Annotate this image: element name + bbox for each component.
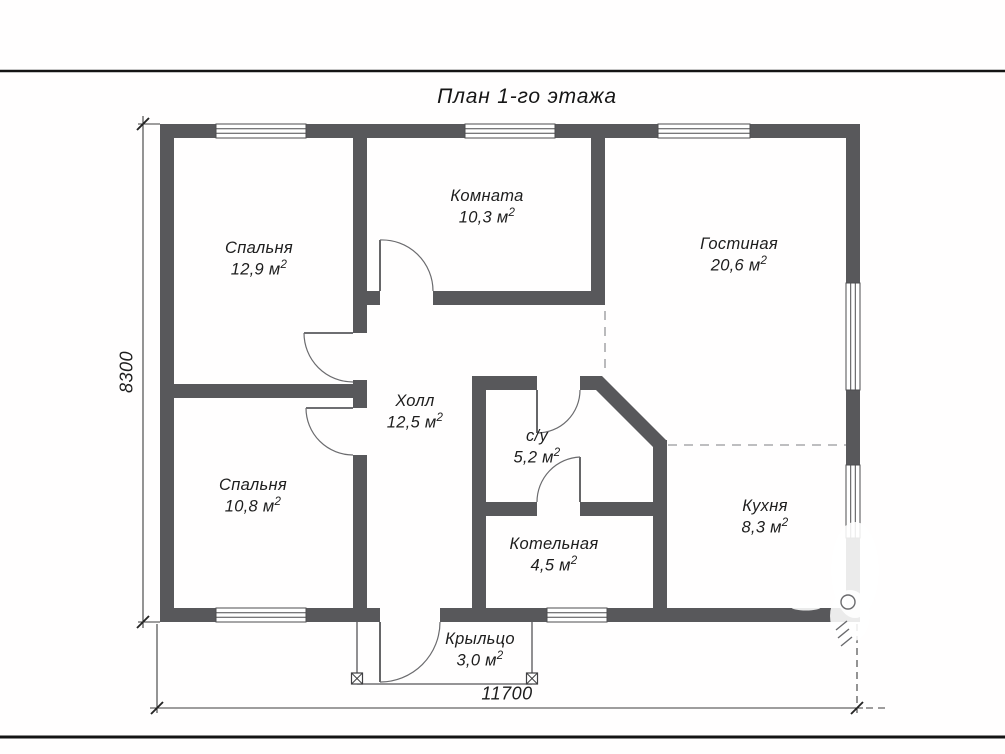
door-entrance bbox=[380, 622, 440, 682]
dimension-height bbox=[137, 116, 160, 628]
porch-post bbox=[527, 673, 538, 684]
window-boiler bbox=[547, 608, 607, 622]
diagonal-wall bbox=[592, 376, 667, 451]
room-area: 8,3 м2 bbox=[741, 516, 788, 538]
room-label-bathroom: с/у 5,2 м2 bbox=[513, 426, 560, 468]
room-label-bedroom-2: Спальня 10,8 м2 bbox=[219, 475, 287, 517]
door-room bbox=[380, 240, 433, 291]
floor-plan-sheet: План 1-го этажа Спальня 12,9 м2 Комната … bbox=[0, 0, 1005, 754]
room-area: 3,0 м2 bbox=[445, 649, 515, 671]
window-bedroom-1 bbox=[216, 124, 306, 138]
room-label-boiler: Котельная 4,5 м2 bbox=[509, 534, 598, 576]
room-area: 12,5 м2 bbox=[387, 411, 444, 433]
room-area: 20,6 м2 bbox=[700, 254, 778, 276]
room-label-room: Комната 10,3 м2 bbox=[450, 186, 523, 228]
dimension-label-height: 8300 bbox=[117, 351, 138, 393]
drawing-title: План 1-го этажа bbox=[437, 85, 617, 109]
room-name: Холл bbox=[387, 391, 444, 411]
window-living-right bbox=[846, 283, 860, 390]
room-name: Гостиная bbox=[700, 234, 778, 254]
window-living-top bbox=[658, 124, 750, 138]
room-name: Котельная bbox=[509, 534, 598, 554]
door-bedroom-1 bbox=[304, 333, 353, 382]
watermark-artifact bbox=[791, 522, 879, 646]
room-name: Кухня bbox=[741, 496, 788, 516]
room-label-porch: Крыльцо 3,0 м2 bbox=[445, 629, 515, 671]
window-room bbox=[465, 124, 555, 138]
room-area: 5,2 м2 bbox=[513, 446, 560, 468]
room-name: с/у bbox=[513, 426, 560, 446]
room-label-bedroom-1: Спальня 12,9 м2 bbox=[225, 238, 293, 280]
room-label-hall: Холл 12,5 м2 bbox=[387, 391, 444, 433]
room-name: Спальня bbox=[219, 475, 287, 495]
room-area: 4,5 м2 bbox=[509, 554, 598, 576]
room-area: 10,3 м2 bbox=[450, 206, 523, 228]
room-area: 12,9 м2 bbox=[225, 258, 293, 280]
room-label-living: Гостиная 20,6 м2 bbox=[700, 234, 778, 276]
room-name: Спальня bbox=[225, 238, 293, 258]
dimension-label-width: 11700 bbox=[481, 684, 532, 705]
room-name: Комната bbox=[450, 186, 523, 206]
window-bedroom-2 bbox=[216, 608, 306, 622]
room-area: 10,8 м2 bbox=[219, 495, 287, 517]
door-bedroom-2 bbox=[306, 408, 353, 455]
room-name: Крыльцо bbox=[445, 629, 515, 649]
porch-post bbox=[352, 673, 363, 684]
room-label-kitchen: Кухня 8,3 м2 bbox=[741, 496, 788, 538]
